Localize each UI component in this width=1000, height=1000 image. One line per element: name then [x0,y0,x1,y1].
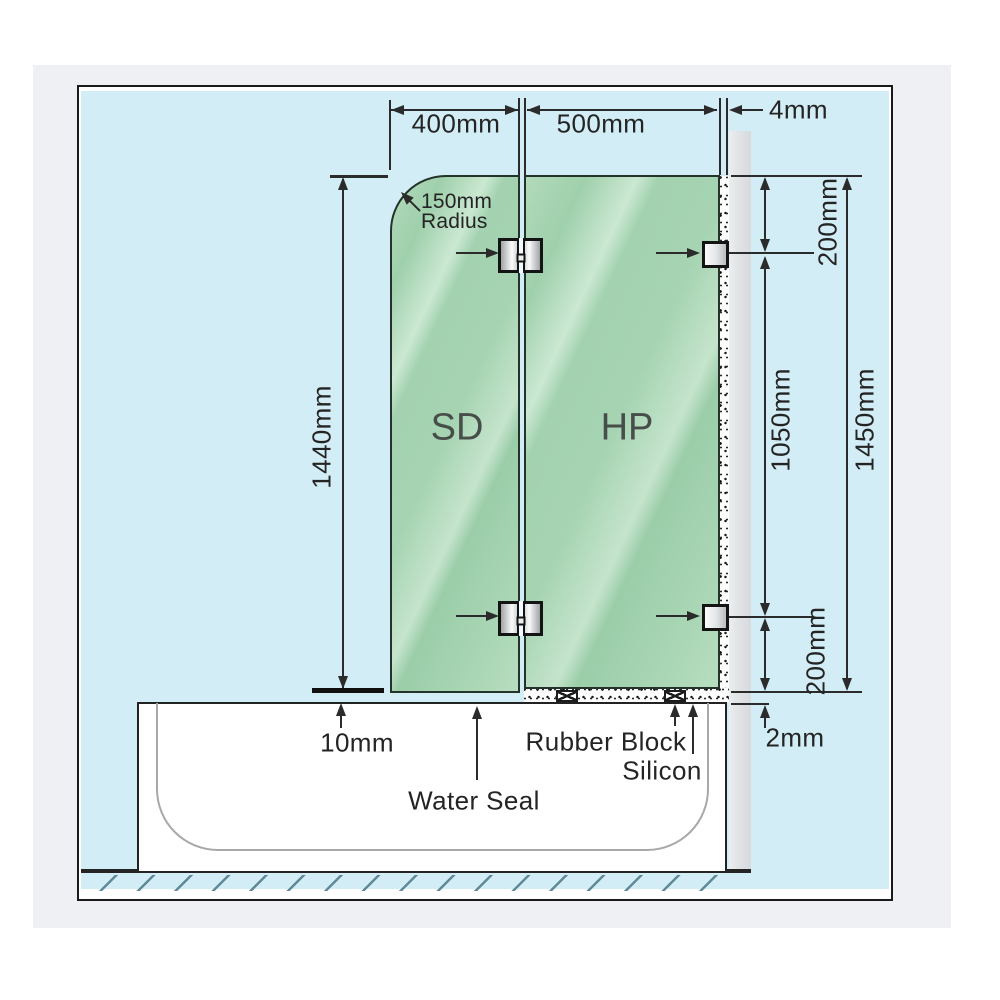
installation-diagram: SD HP 150mm Radius 400mm 500mm 4m [0,0,1000,1000]
dim-arrow [760,239,770,252]
dim-arrow [338,177,348,190]
dim-arrow [842,678,852,691]
wall-bracket-bottom [702,604,729,631]
rubber-block-icon [664,690,686,702]
sd-panel-label: SD [431,407,484,450]
dim-arrow [760,618,770,631]
extension-line [726,98,728,175]
radius-arrow-line [408,199,421,212]
dim-line-4 [741,109,763,111]
dim-arrow [760,678,770,691]
extension-line [524,98,526,175]
hinge-pointer-arrow [456,252,488,254]
dim-line-1440 [342,179,344,689]
water-seal-label: Water Seal [408,786,540,817]
glass-bottom-tick [312,688,384,693]
dim-4-label: 4mm [769,95,828,126]
dim-arrow [760,256,770,269]
dim-200-top-label: 200mm [813,178,844,267]
dim-200-bottom-label: 200mm [801,607,832,696]
extension-line [518,98,520,175]
callout-line-10mm [340,715,342,728]
dim-arrow [527,105,540,115]
bracket-pointer-arrow [687,248,700,258]
callout-line-silicon [692,716,694,754]
dim-arrow [391,105,404,115]
dim-1050-label: 1050mm [766,368,797,472]
extension-line [731,691,862,693]
dim-arrow [704,105,717,115]
hinge-pin-icon [516,253,525,262]
callout-line-water-seal [476,718,478,780]
glass-hinge-top [498,238,543,273]
bracket-pointer-arrow [656,252,688,254]
hinge-pointer-arrow [486,611,499,621]
extension-line [729,252,814,254]
extension-line [719,98,721,175]
floor-hatching [81,875,731,891]
glass-hinge-bottom [498,601,543,636]
dim-arrow [760,177,770,190]
radius-word-label: Radius [421,210,488,234]
dim-2-label: 2mm [766,723,825,754]
hinge-pointer-arrow [456,615,488,617]
hp-panel-label: HP [601,407,654,450]
dim-arrow [842,177,852,190]
bracket-pointer-arrow [656,615,688,617]
dim-line-1450 [846,179,848,689]
hinge-pointer-arrow [486,248,499,258]
bracket-pointer-arrow [687,611,700,621]
rubber-block-label: Rubber Block [526,727,687,758]
rubber-seal-strip [524,688,729,702]
dim-line-200-bottom [764,630,766,680]
rubber-block-icon [556,690,578,702]
dim-1440-label: 1440mm [307,385,338,489]
dim-500-label: 500mm [557,109,646,140]
dim-1450-label: 1450mm [850,368,881,472]
callout-line-rubber-block [674,716,676,726]
wall-channel [729,131,751,871]
dim-arrow [760,603,770,616]
dim-400-label: 400mm [412,109,501,140]
silicon-label: Silicon [622,756,701,787]
dim-arrow [505,105,518,115]
hinge-pin-icon [516,616,525,625]
dim-10-label: 10mm [320,728,394,759]
wall-bracket-top [702,241,729,268]
